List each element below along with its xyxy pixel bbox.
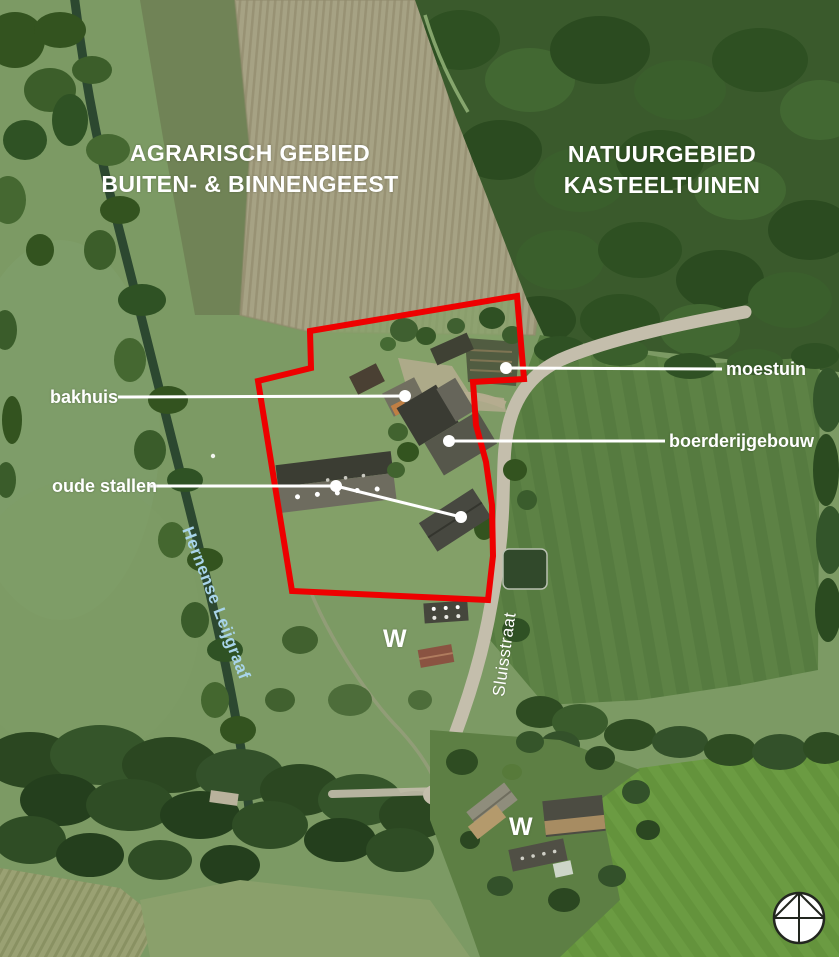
label-moestuin: moestuin xyxy=(726,359,806,379)
region-label-natuur-line2: KASTEELTUINEN xyxy=(545,170,779,201)
region-label-agrarisch-line2: BUITEN- & BINNENGEEST xyxy=(68,169,432,200)
label-boerderijgebouw: boerderijgebouw xyxy=(669,431,814,451)
marker-w-south: W xyxy=(509,813,533,841)
region-label-natuur: NATUURGEBIED KASTEELTUINEN xyxy=(545,139,779,201)
moestuin-leader xyxy=(506,368,722,369)
region-label-agrarisch: AGRARISCH GEBIED BUITEN- & BINNENGEEST xyxy=(68,138,432,200)
marker-w-north: W xyxy=(383,625,407,653)
pond xyxy=(503,549,547,589)
region-label-natuur-line1: NATUURGEBIED xyxy=(545,139,779,170)
label-oude-stallen: oude stallen xyxy=(52,476,157,496)
moestuin-dot xyxy=(500,362,512,374)
east-field xyxy=(490,335,820,705)
label-bakhuis: bakhuis xyxy=(50,387,118,407)
bakhuis-leader xyxy=(118,396,405,397)
annotated-aerial-map: AGRARISCH GEBIED BUITEN- & BINNENGEEST N… xyxy=(0,0,839,957)
oude-stallen-dot xyxy=(330,480,342,492)
bakhuis-dot xyxy=(399,390,411,402)
oude-stallen-dot-2 xyxy=(455,511,467,523)
north-arrow-icon xyxy=(774,893,824,943)
region-label-agrarisch-line1: AGRARISCH GEBIED xyxy=(68,138,432,169)
boerderijgebouw-dot xyxy=(443,435,455,447)
